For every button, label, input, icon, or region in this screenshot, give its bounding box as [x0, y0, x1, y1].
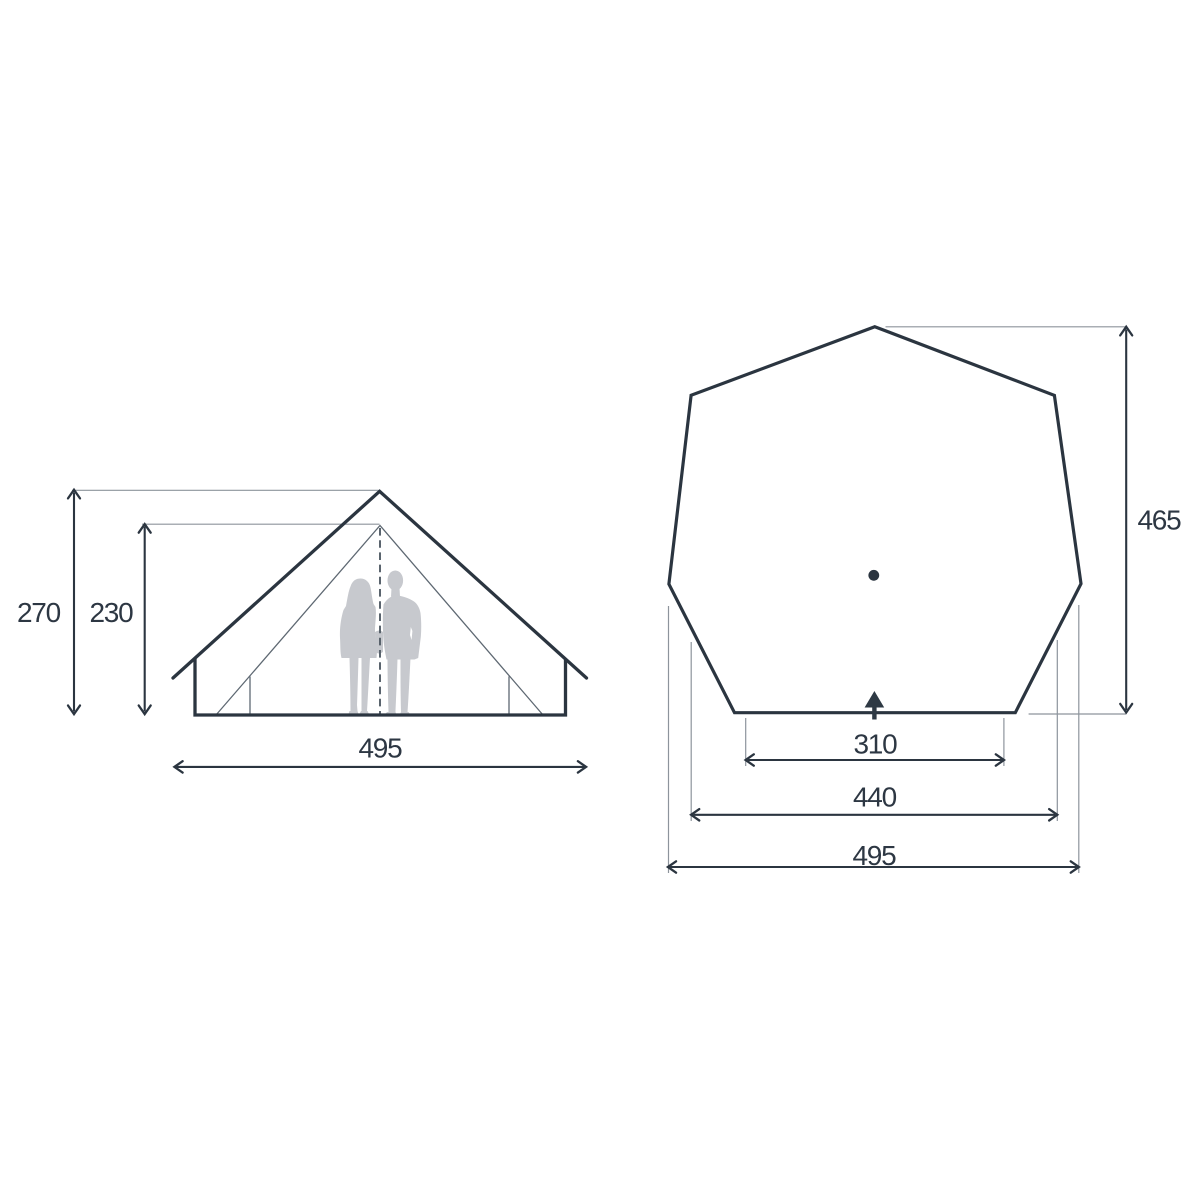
svg-text:495: 495: [358, 733, 402, 764]
svg-text:495: 495: [852, 840, 896, 871]
svg-text:230: 230: [89, 597, 133, 628]
svg-text:270: 270: [17, 597, 61, 628]
svg-text:465: 465: [1137, 505, 1181, 536]
svg-text:440: 440: [853, 781, 897, 812]
svg-text:310: 310: [853, 728, 897, 759]
